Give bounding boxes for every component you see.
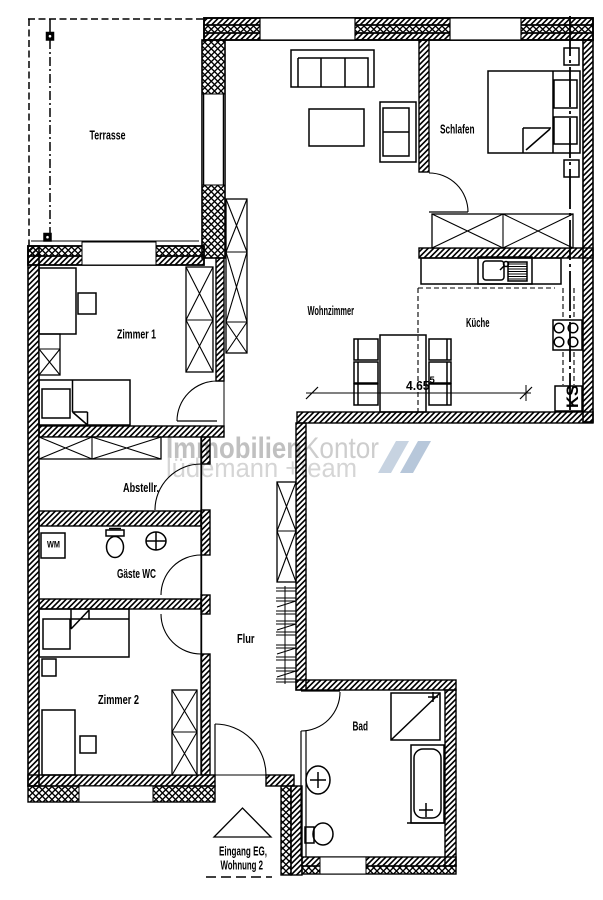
svg-text:Eingang EG,: Eingang EG, <box>219 845 267 859</box>
svg-text:Bad: Bad <box>353 720 369 734</box>
svg-text:WM: WM <box>47 540 60 550</box>
svg-text:Wohnung 2: Wohnung 2 <box>221 859 264 873</box>
svg-text:Terrasse: Terrasse <box>90 129 126 143</box>
svg-text:Abstellr.: Abstellr. <box>123 481 159 495</box>
svg-text:Zimmer 1: Zimmer 1 <box>117 328 156 342</box>
svg-text:KS: KS <box>563 385 582 408</box>
svg-text:4.65: 4.65 <box>406 378 430 393</box>
svg-text:Küche: Küche <box>466 316 490 330</box>
svg-text:Wohnzimmer: Wohnzimmer <box>308 304 355 318</box>
svg-text:lüdemann +team: lüdemann +team <box>166 453 357 483</box>
svg-text:Zimmer 2: Zimmer 2 <box>98 693 139 707</box>
svg-text:Flur: Flur <box>237 632 255 646</box>
svg-text:Schlafen: Schlafen <box>440 123 475 137</box>
svg-text:5: 5 <box>430 375 436 386</box>
svg-text:Gäste WC: Gäste WC <box>117 567 156 581</box>
